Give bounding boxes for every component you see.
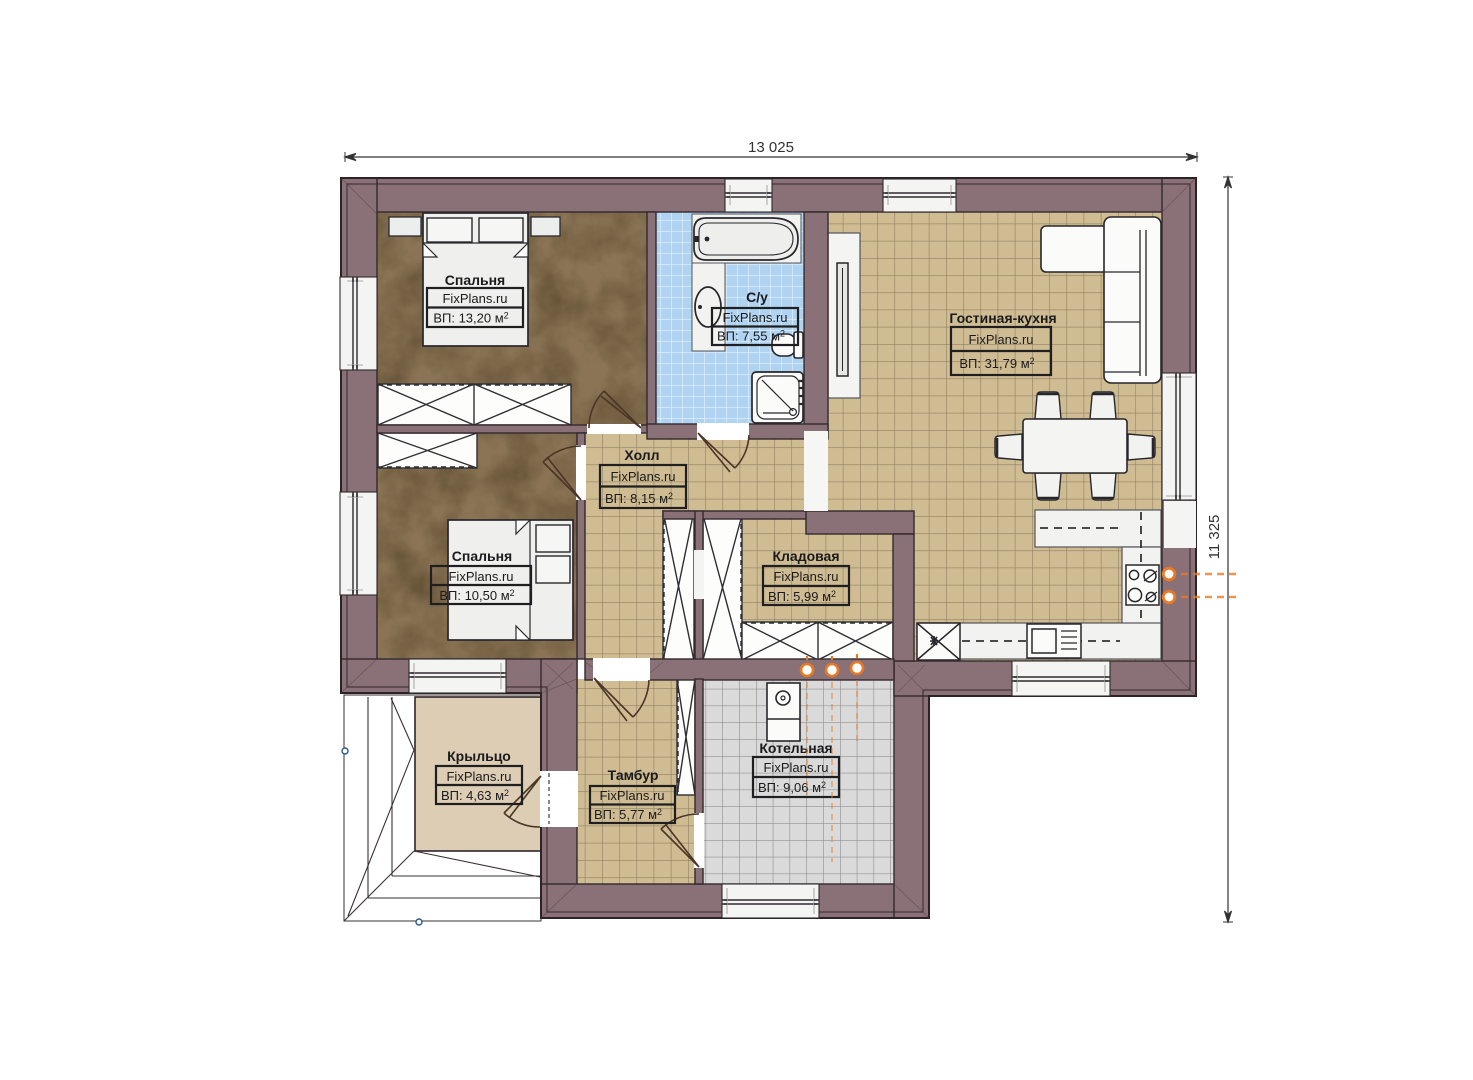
svg-text:Холл: Холл [624, 447, 659, 463]
svg-text:ВП: 4,63 м2: ВП: 4,63 м2 [441, 788, 509, 803]
svg-text:ВП: 9,06 м2: ВП: 9,06 м2 [758, 780, 826, 795]
svg-text:ВП: 7,55 м2: ВП: 7,55 м2 [717, 329, 785, 344]
svg-text:FixPlans.ru: FixPlans.ru [448, 569, 513, 584]
svg-text:FixPlans.ru: FixPlans.ru [722, 310, 787, 325]
svg-text:FixPlans.ru: FixPlans.ru [446, 769, 511, 784]
svg-text:Спальня: Спальня [452, 548, 512, 564]
svg-text:FixPlans.ru: FixPlans.ru [599, 788, 664, 803]
svg-text:ВП: 8,15 м2: ВП: 8,15 м2 [605, 491, 673, 506]
svg-text:ВП: 5,77 м2: ВП: 5,77 м2 [594, 807, 662, 822]
svg-text:11 325: 11 325 [1206, 515, 1223, 560]
svg-text:FixPlans.ru: FixPlans.ru [610, 469, 675, 484]
svg-text:FixPlans.ru: FixPlans.ru [442, 291, 507, 306]
svg-text:ВП: 13,20 м2: ВП: 13,20 м2 [433, 311, 508, 326]
svg-text:Гостиная-кухня: Гостиная-кухня [949, 310, 1056, 326]
svg-text:13 025: 13 025 [748, 139, 794, 156]
svg-text:ВП: 5,99 м2: ВП: 5,99 м2 [768, 589, 836, 604]
svg-text:FixPlans.ru: FixPlans.ru [763, 760, 828, 775]
svg-text:Тамбур: Тамбур [608, 767, 659, 783]
svg-text:Котельная: Котельная [759, 740, 832, 756]
svg-text:С/у: С/у [746, 289, 768, 305]
svg-text:Кладовая: Кладовая [772, 548, 839, 564]
svg-text:Крыльцо: Крыльцо [447, 748, 511, 764]
svg-text:Спальня: Спальня [445, 272, 505, 288]
svg-text:ВП: 31,79 м2: ВП: 31,79 м2 [959, 356, 1034, 371]
svg-text:FixPlans.ru: FixPlans.ru [773, 569, 838, 584]
svg-text:FixPlans.ru: FixPlans.ru [968, 332, 1033, 347]
svg-text:ВП: 10,50 м2: ВП: 10,50 м2 [439, 588, 514, 603]
